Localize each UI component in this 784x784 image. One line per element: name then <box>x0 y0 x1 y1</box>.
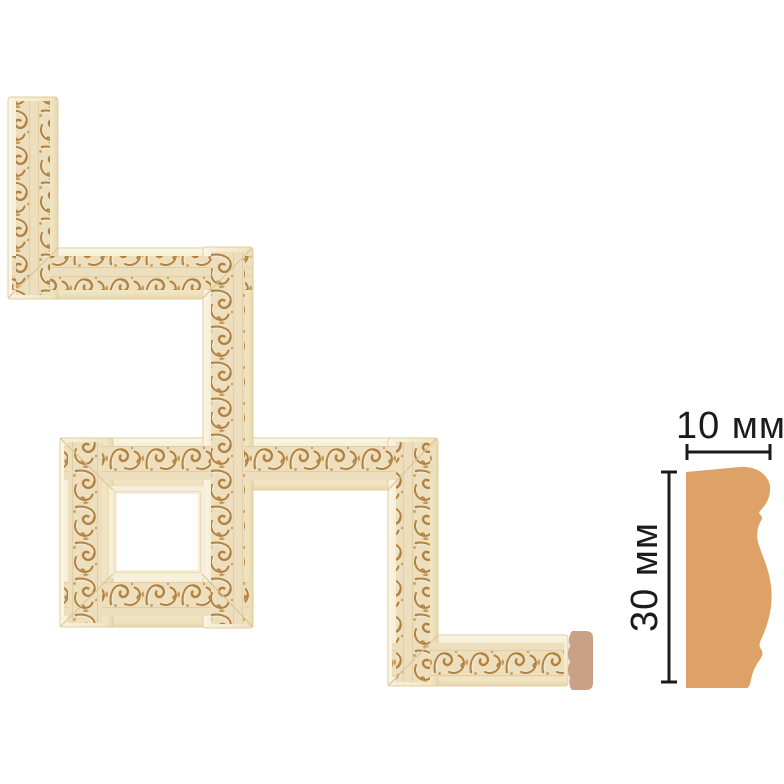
molding-ornament-bands <box>12 101 564 682</box>
height-dimension-label: 30 мм <box>627 517 663 637</box>
band-mid-vertical <box>211 252 245 624</box>
band-left-vertical <box>16 101 50 295</box>
width-dimension-label: 10 мм <box>671 408 784 444</box>
band-mid-horizontal <box>64 446 433 480</box>
band-frame-left <box>68 442 102 623</box>
profile-cross-section <box>686 467 772 688</box>
end-cut-cap <box>568 631 593 690</box>
band-right-vertical <box>396 442 430 682</box>
frame-window <box>113 490 202 574</box>
product-image: 10 мм 30 мм <box>0 0 784 784</box>
molding-corner-illustration <box>0 0 784 784</box>
